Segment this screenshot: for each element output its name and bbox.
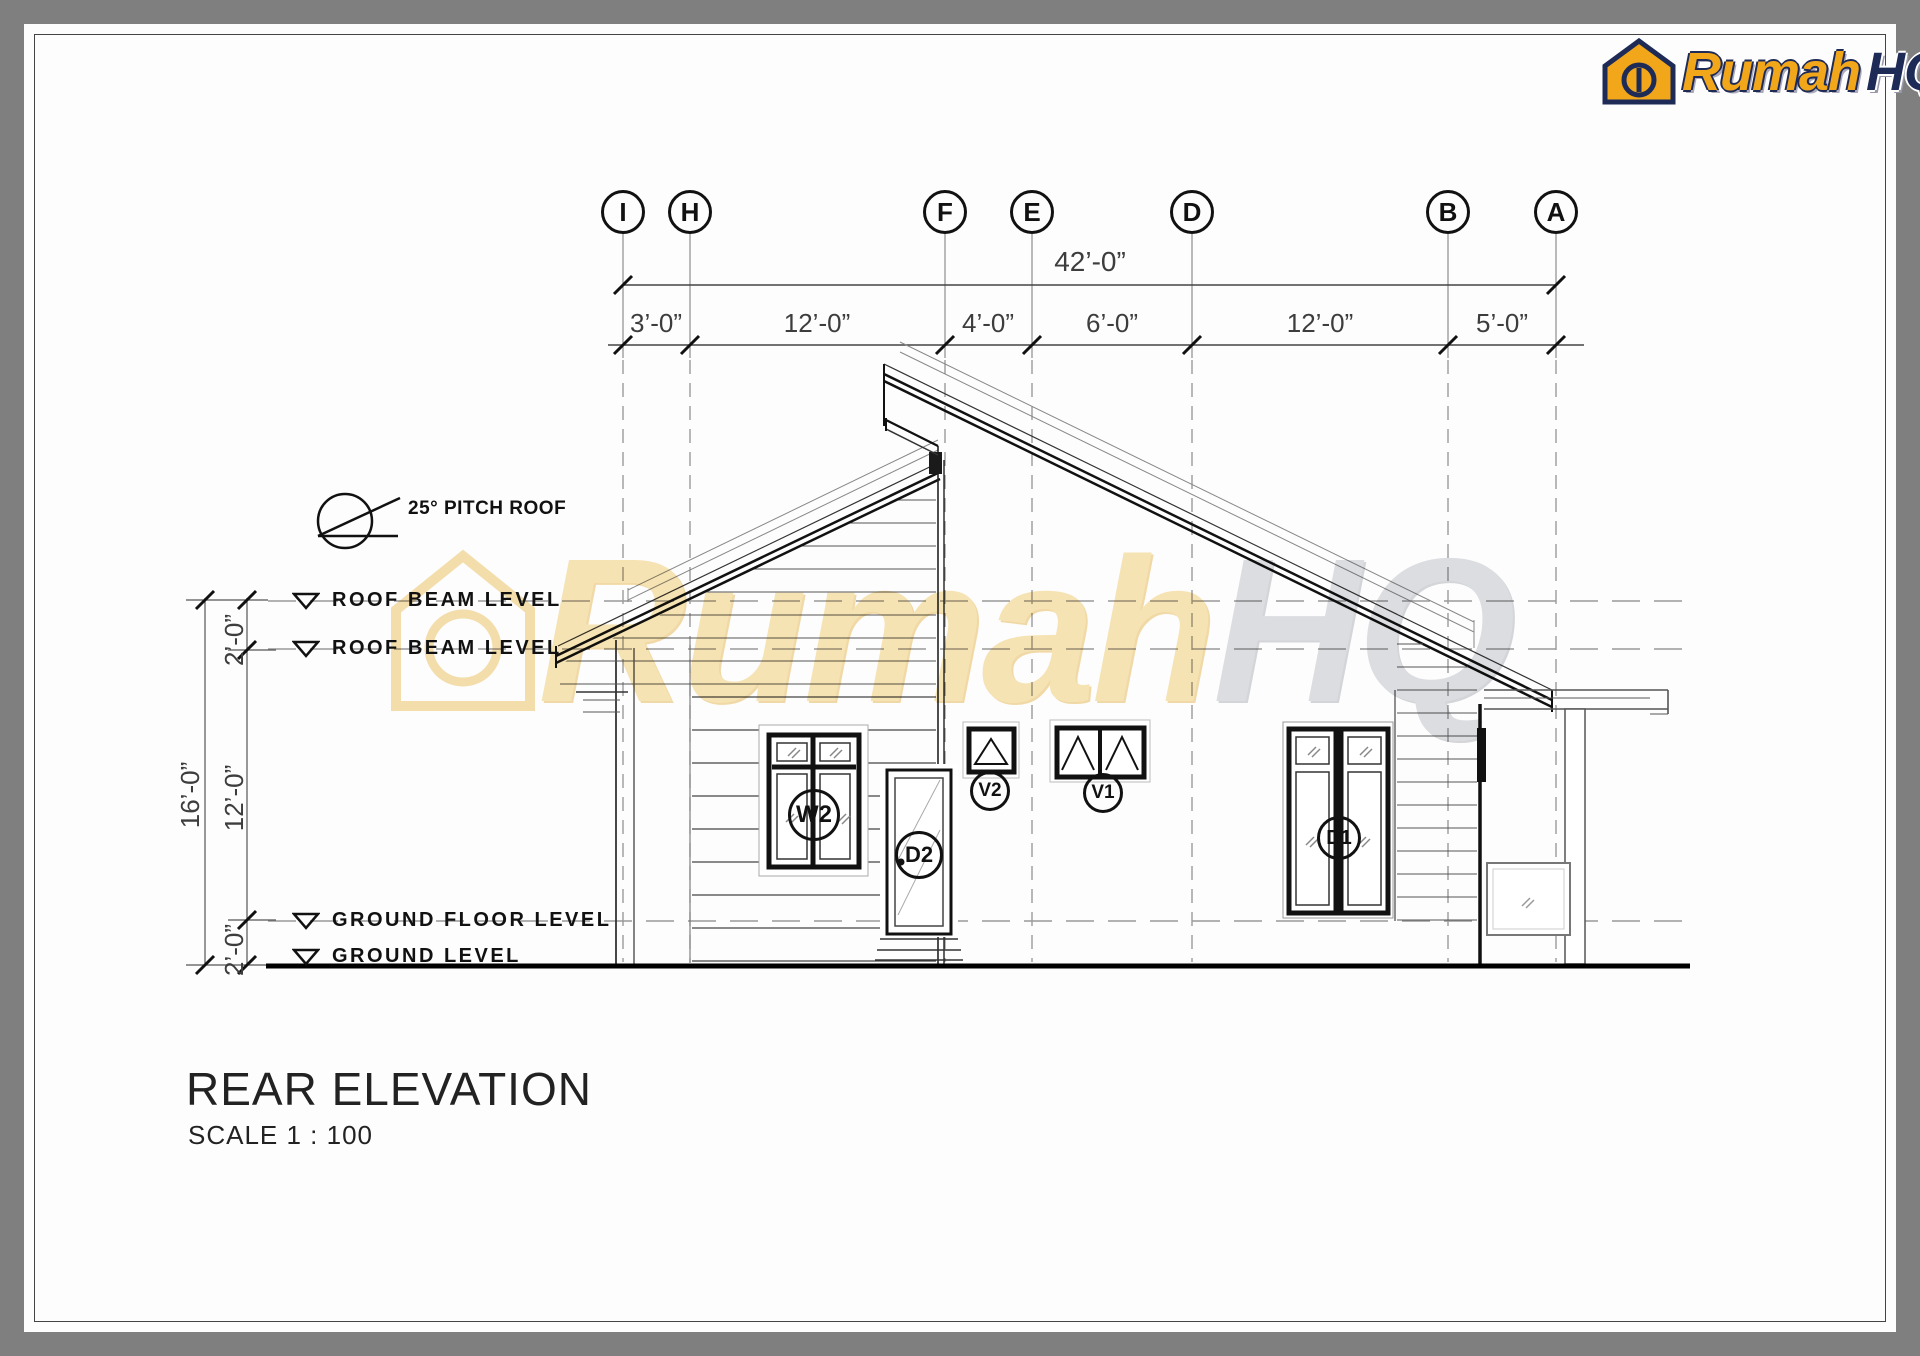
label-ground-floor-level: GROUND FLOOR LEVEL <box>332 909 611 932</box>
tag-window-w2-label: W2 <box>796 801 832 829</box>
dim-vertical-bottom: 2’-0” <box>219 880 249 1020</box>
grid-marker-d-label: D <box>1183 197 1202 228</box>
dim-seg-5: 12’-0” <box>1260 308 1380 339</box>
dim-seg-3: 4’-0” <box>928 308 1048 339</box>
grid-marker-b-label: B <box>1439 197 1458 228</box>
right-wall <box>1477 704 1486 966</box>
grid-marker-f: F <box>923 190 967 234</box>
brand-name-second: HQ <box>1866 41 1920 103</box>
tag-vent-v2: V2 <box>970 771 1010 811</box>
label-roof-beam-lower: ROOF BEAM LEVEL <box>332 637 562 660</box>
label-roof-beam-upper: ROOF BEAM LEVEL <box>332 589 562 612</box>
drawing-title: REAR ELEVATION <box>186 1062 592 1116</box>
tag-vent-v2-label: V2 <box>978 780 1001 802</box>
grid-marker-h: H <box>668 190 712 234</box>
vent-v2 <box>963 722 1019 778</box>
grid-marker-f-label: F <box>937 197 953 228</box>
dim-vertical-top: 2’-0” <box>219 570 249 710</box>
dim-seg-6: 5’-0” <box>1442 308 1562 339</box>
drawing-scale: SCALE 1 : 100 <box>188 1120 373 1151</box>
tag-window-w2: W2 <box>788 789 840 841</box>
tag-door-d2: D2 <box>895 831 943 879</box>
tag-door-d1: D1 <box>1317 816 1361 860</box>
left-wall-lines <box>616 640 690 966</box>
right-roof <box>884 342 1552 712</box>
grid-marker-e-label: E <box>1023 197 1040 228</box>
dim-seg-4: 6’-0” <box>1052 308 1172 339</box>
dim-vertical-middle: 12’-0” <box>219 728 249 868</box>
grid-marker-e: E <box>1010 190 1054 234</box>
grid-marker-a-label: A <box>1547 197 1566 228</box>
grid-marker-i-label: I <box>619 197 626 228</box>
tag-door-d2-label: D2 <box>905 842 933 868</box>
left-roof <box>556 440 940 712</box>
brand-logo: Rumah HQ <box>1602 38 1920 106</box>
level-marker-icon <box>292 592 320 610</box>
grid-marker-a: A <box>1534 190 1578 234</box>
level-marker-icon <box>292 640 320 658</box>
grid-marker-i: I <box>601 190 645 234</box>
tag-window-v1-label: V1 <box>1091 782 1114 804</box>
right-siding <box>1395 644 1477 921</box>
dim-vertical-overall: 16’-0” <box>175 725 205 865</box>
label-ground-level: GROUND LEVEL <box>332 945 521 968</box>
dim-total: 42’-0” <box>1020 246 1160 278</box>
tag-window-v1: V1 <box>1083 773 1123 813</box>
roof-pitch-symbol <box>318 494 400 548</box>
level-marker-icon <box>292 948 320 966</box>
grid-marker-d: D <box>1170 190 1214 234</box>
roof-pitch-annotation: 25° PITCH ROOF <box>408 498 566 520</box>
dim-seg-2: 12’-0” <box>757 308 877 339</box>
porch <box>1484 690 1668 964</box>
brand-name-first: Rumah <box>1682 41 1860 103</box>
level-marker-icon <box>292 912 320 930</box>
screenshot-root: { "logo": { "brand_first": "Rumah", "bra… <box>0 0 1920 1356</box>
dim-seg-1: 3’-0” <box>596 308 716 339</box>
grid-marker-h-label: H <box>681 197 700 228</box>
brand-logo-house-icon <box>1602 38 1676 106</box>
tag-door-d1-label: D1 <box>1326 827 1352 850</box>
grid-marker-b: B <box>1426 190 1470 234</box>
